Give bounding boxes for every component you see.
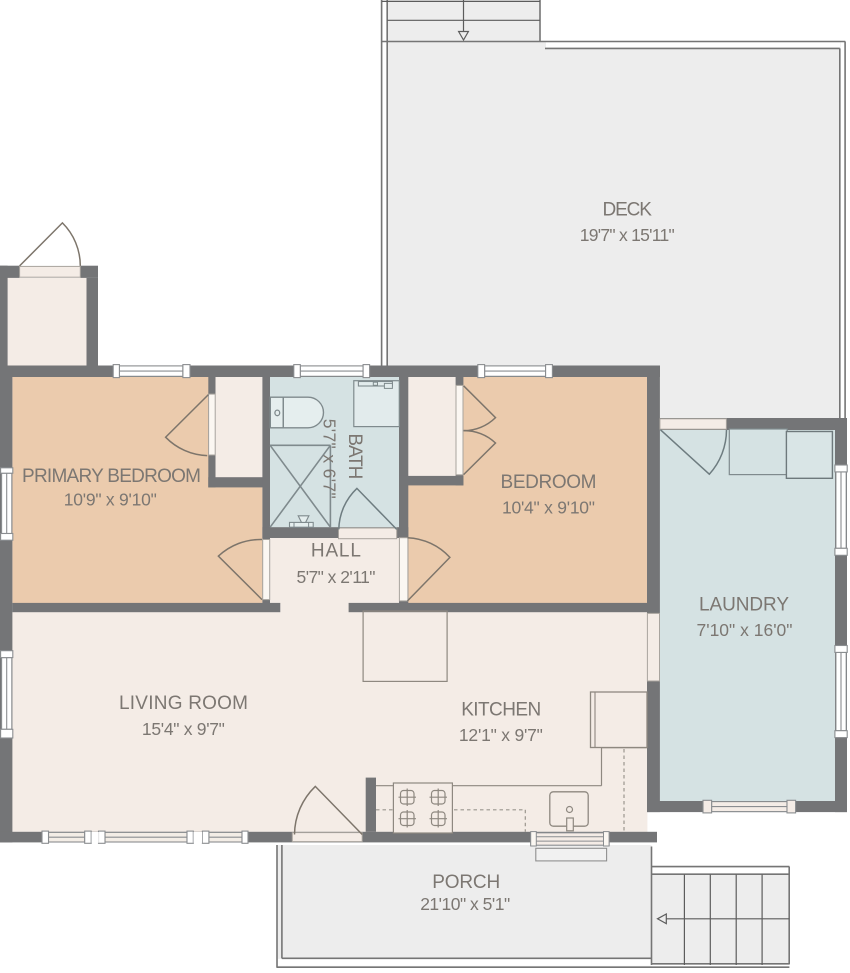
svg-text:5'7" x 6'7": 5'7" x 6'7"	[319, 419, 339, 499]
svg-text:LAUNDRY: LAUNDRY	[699, 595, 789, 616]
svg-text:7'10" x 16'0": 7'10" x 16'0"	[697, 620, 793, 640]
svg-text:KITCHEN: KITCHEN	[461, 700, 541, 721]
svg-text:15'4" x 9'7": 15'4" x 9'7"	[142, 719, 225, 739]
svg-text:5'7" x 2'11": 5'7" x 2'11"	[297, 567, 376, 587]
svg-text:LIVING ROOM: LIVING ROOM	[119, 693, 248, 714]
svg-text:10'9" x 9'10": 10'9" x 9'10"	[64, 490, 157, 510]
svg-text:BATH: BATH	[344, 433, 365, 479]
svg-text:12'1" x 9'7": 12'1" x 9'7"	[459, 725, 543, 745]
svg-text:19'7" x 15'11": 19'7" x 15'11"	[580, 225, 675, 245]
svg-text:10'4" x 9'10": 10'4" x 9'10"	[502, 498, 595, 518]
svg-text:PORCH: PORCH	[432, 872, 500, 893]
svg-text:DECK: DECK	[602, 200, 652, 221]
svg-text:21'10" x 5'1": 21'10" x 5'1"	[420, 894, 510, 914]
svg-text:BEDROOM: BEDROOM	[501, 472, 597, 493]
svg-text:HALL: HALL	[311, 541, 361, 562]
svg-text:PRIMARY BEDROOM: PRIMARY BEDROOM	[22, 466, 201, 487]
